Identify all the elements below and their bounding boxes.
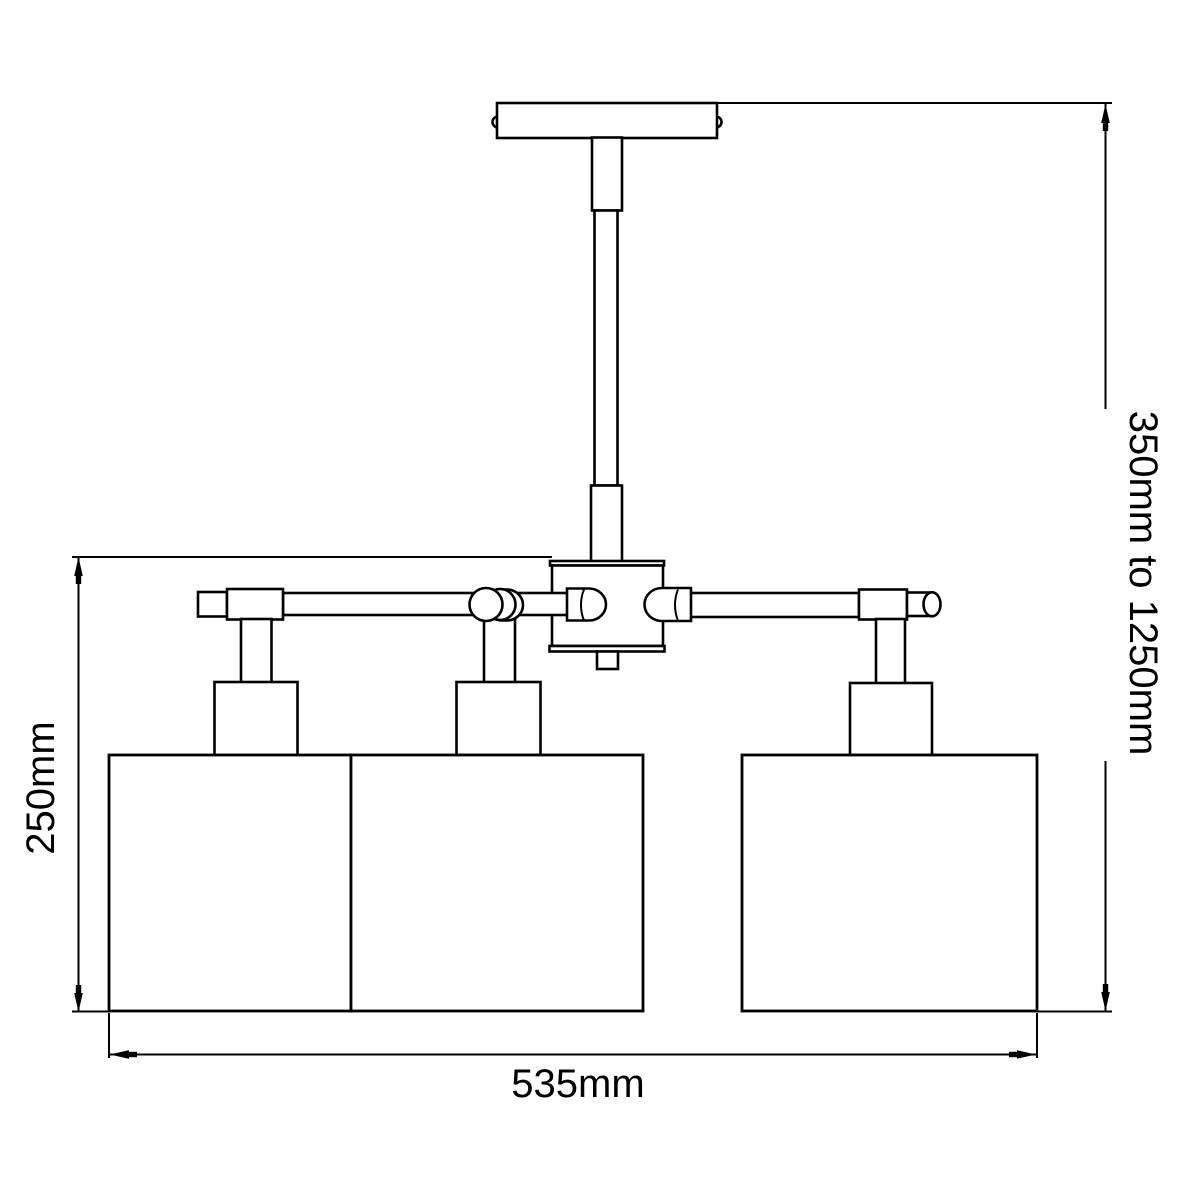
arrow-stub [129, 1052, 137, 1057]
stem-connector-lower [591, 486, 622, 562]
lamp-holder-right [850, 683, 932, 755]
arm-hub-coupler-front [567, 589, 606, 621]
arrowhead-up [74, 557, 83, 576]
arm-block-right [859, 590, 907, 620]
ball-joint-sphere [470, 588, 503, 621]
arrow-stub [76, 985, 81, 993]
arm-end-cap-left [198, 592, 227, 617]
arrowhead-down [74, 993, 83, 1012]
dimension-width: 535mm [109, 1013, 1037, 1106]
hub-nub [597, 652, 618, 670]
arm-block-left [227, 589, 283, 620]
arrowhead-right [1017, 1050, 1036, 1059]
lamp-holder-left [215, 682, 298, 755]
arm-end-cap-ellipse-right [924, 592, 941, 616]
shade-right [742, 755, 1037, 1011]
arrowhead-down [1101, 992, 1110, 1011]
arm-tube-left [283, 593, 586, 615]
shade-center [351, 755, 643, 1011]
lamp-holder-center [457, 682, 541, 755]
lamp-stem-right [876, 619, 905, 684]
lamp-stem-left [241, 619, 272, 683]
width-label: 535mm [511, 1062, 644, 1106]
lamp-stem-center [484, 616, 515, 683]
shade-left [109, 755, 351, 1011]
arrow-stub [1103, 984, 1108, 992]
arrow-stub [1009, 1052, 1017, 1057]
arrow-stub [76, 576, 81, 584]
dimension-drawing: 250mm 350mm to 1250mm 535mm [0, 0, 1200, 1200]
body-height-label: 250mm [19, 721, 63, 854]
arrowhead-left [110, 1050, 129, 1059]
height-range-label: 350mm to 1250mm [1121, 411, 1165, 756]
arm-tube-right [663, 593, 859, 617]
ceiling-plate [497, 103, 717, 138]
stem-rod [595, 211, 618, 486]
stem-connector-upper [592, 138, 622, 211]
arrow-stub [1103, 123, 1108, 131]
technical-drawing-canvas: 250mm 350mm to 1250mm 535mm [0, 0, 1200, 1200]
arm-hub-coupler-right [645, 588, 692, 621]
arrowhead-up [1101, 104, 1110, 123]
